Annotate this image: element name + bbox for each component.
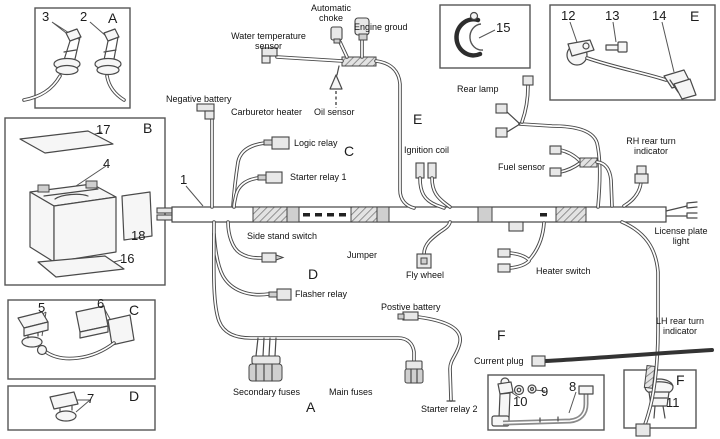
label-automatic-choke: Automatic choke [300, 3, 362, 24]
label-negative-battery: Negative battery [166, 94, 232, 104]
clamp-art [457, 13, 483, 56]
label-secondary-fuses: Secondary fuses [233, 387, 300, 397]
relays-art [18, 306, 134, 358]
inset-e-letter: E [690, 8, 699, 24]
label-jumper: Jumper [347, 250, 377, 260]
relay-d-art [50, 392, 78, 421]
speed-sensor-art [567, 40, 696, 99]
part-number-3: 3 [42, 9, 49, 24]
section-letter-a: A [306, 399, 315, 415]
harness-branches [197, 18, 712, 436]
label-starter-relay-2: Starter relay 2 [421, 404, 478, 414]
inset-f-letter: F [676, 372, 685, 388]
part-number-14: 14 [652, 8, 666, 23]
part-number-6: 6 [97, 296, 104, 311]
part-number-8: 8 [569, 379, 576, 394]
label-license-plate-light: License plate light [650, 226, 712, 247]
inset-d-letter: D [129, 388, 139, 404]
section-letter-d: D [308, 266, 318, 282]
section-letter-e: E [413, 111, 422, 127]
section-letter-c: C [344, 143, 354, 159]
label-heater-switch: Heater switch [536, 266, 591, 276]
label-rh-rear-turn-indicator: RH rear turn indicator [615, 136, 687, 157]
part-number-1: 1 [180, 172, 187, 187]
part-number-15: 15 [496, 20, 510, 35]
part-number-11: 11 [666, 395, 680, 410]
harness-trunk [157, 207, 666, 231]
inset-b-letter: B [143, 120, 152, 136]
part-number-17: 17 [96, 122, 110, 137]
label-flasher-relay: Flasher relay [295, 289, 347, 299]
label-lh-rear-turn-indicator: LH rear turn indicator [644, 316, 716, 337]
label-positive-battery: Postive battery [381, 302, 441, 312]
part-number-4: 4 [103, 156, 110, 171]
label-side-stand-switch: Side stand switch [247, 231, 317, 241]
label-water-temp-sensor: Water temperature sensor [222, 31, 315, 52]
wiring-diagram: .box{fill:none;stroke:#555;stroke-width:… [0, 0, 720, 439]
label-fuel-sensor: Fuel sensor [498, 162, 545, 172]
part-number-7: 7 [87, 391, 94, 406]
section-letter-f: F [497, 327, 506, 343]
part-number-13: 13 [605, 8, 619, 23]
label-starter-relay-1: Starter relay 1 [290, 172, 347, 182]
label-ignition-coil: Ignition coil [404, 145, 449, 155]
spark-plug-caps-art [24, 29, 124, 100]
label-current-plug: Current plug [474, 356, 524, 366]
label-logic-relay: Logic relay [294, 138, 338, 148]
part-number-12: 12 [561, 8, 575, 23]
part-number-18: 18 [131, 228, 145, 243]
label-rear-lamp: Rear lamp [457, 84, 499, 94]
part-number-2: 2 [80, 9, 87, 24]
label-carburetor-heater: Carburetor heater [231, 107, 302, 117]
inset-a-letter: A [108, 10, 117, 26]
part-number-5: 5 [38, 300, 45, 315]
part-number-16: 16 [120, 251, 134, 266]
label-oil-sensor: Oil sensor [314, 107, 355, 117]
label-main-fuses: Main fuses [329, 387, 373, 397]
part-number-9: 9 [541, 384, 548, 399]
label-fly-wheel: Fly wheel [406, 270, 444, 280]
label-engine-ground: Engine groud [354, 22, 408, 32]
inset-c-letter: C [129, 302, 139, 318]
part-number-10: 10 [513, 394, 527, 409]
diagram-line-art: .box{fill:none;stroke:#555;stroke-width:… [0, 0, 720, 439]
